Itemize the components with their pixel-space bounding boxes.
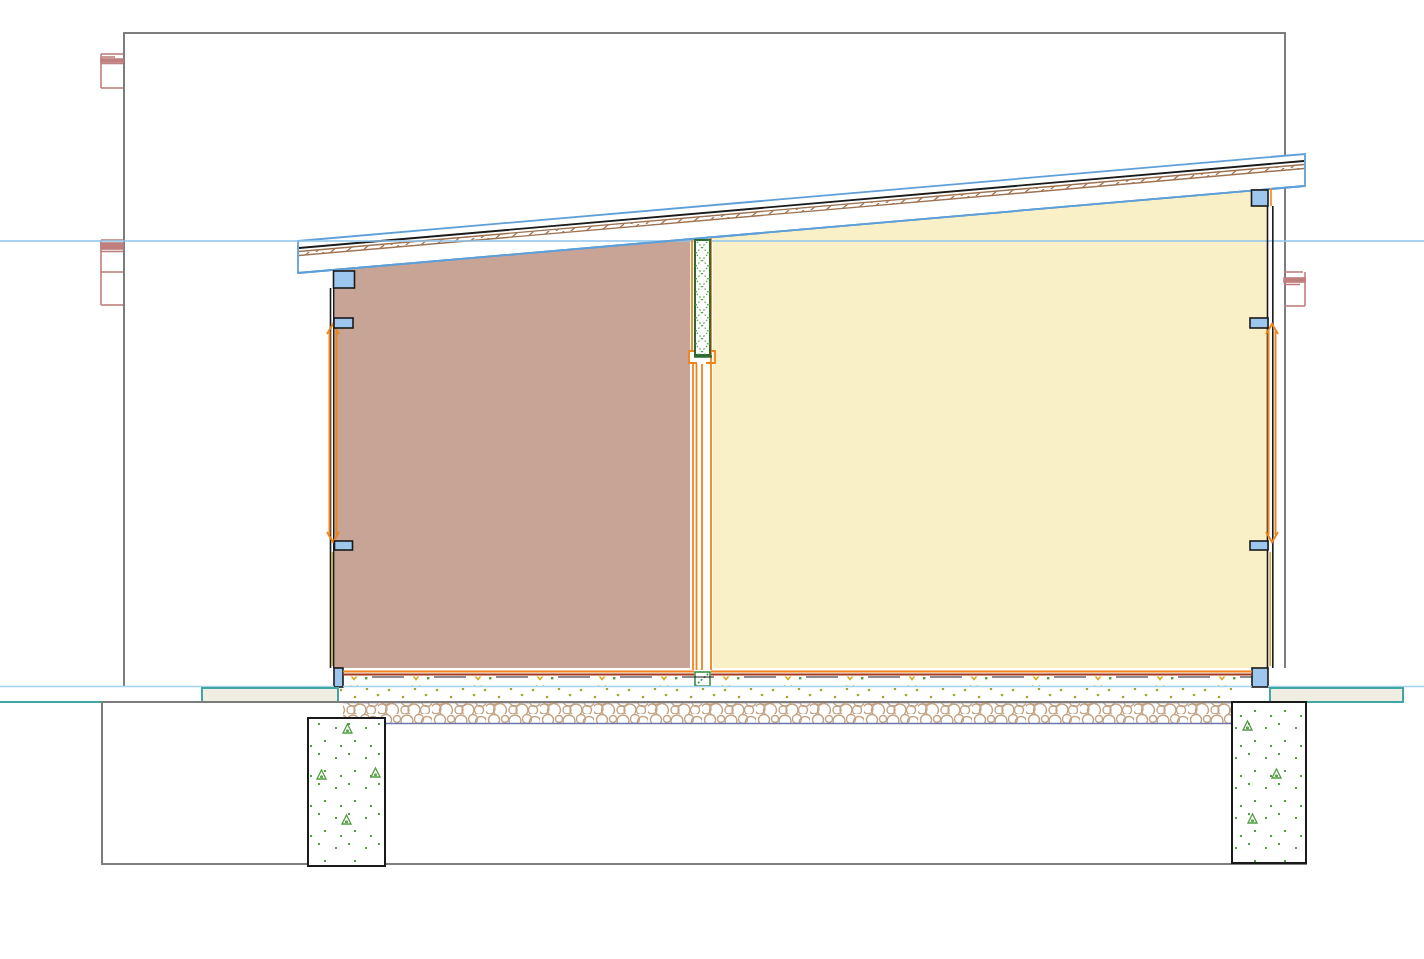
screed-band [338, 688, 1232, 702]
bottom-plate [334, 668, 343, 687]
window-head [334, 318, 353, 328]
foundation-crop-border [102, 702, 1306, 864]
room-left-fill [335, 239, 690, 668]
bottom-plate [1252, 668, 1268, 687]
top-plate [1252, 190, 1269, 206]
adjacent-structure-top-left [101, 54, 123, 88]
top-plate [334, 271, 355, 288]
adjacent-structure-right [1284, 272, 1305, 306]
window-sill [1250, 541, 1268, 550]
window-head [1250, 318, 1268, 328]
ground-band-left [202, 688, 338, 702]
footing-left [308, 718, 385, 866]
ground-band-far-left [0, 688, 202, 702]
footing-right [1232, 702, 1306, 863]
adjacent-structure-left [101, 240, 123, 305]
gravel-band [343, 703, 1232, 724]
centre-partition [689, 238, 715, 686]
room-right-fill [713, 189, 1268, 668]
window-sill [335, 541, 353, 550]
building-section-view [0, 0, 1424, 959]
ground-band-right [1270, 688, 1403, 702]
floor-insulation-band [343, 677, 1252, 687]
floor-assembly [338, 672, 1252, 724]
